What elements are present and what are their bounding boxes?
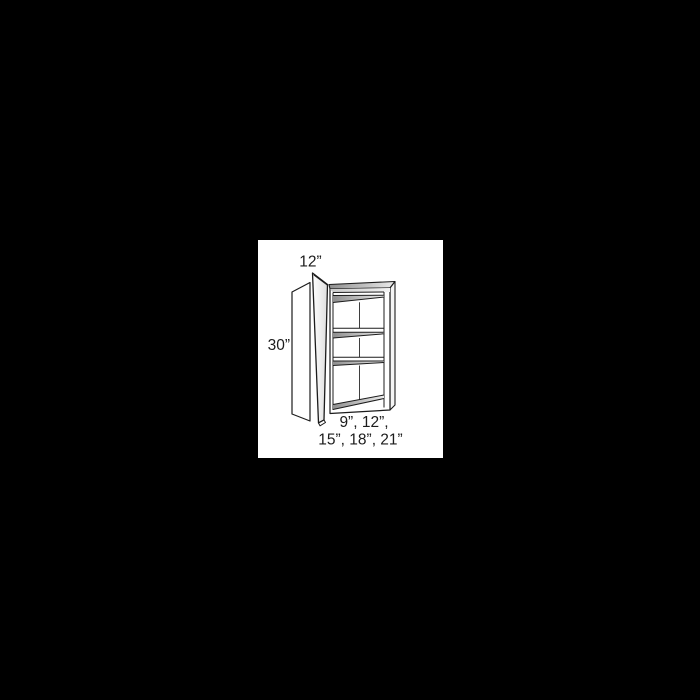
cabinet-left-side-panel-shape [292,283,310,422]
canvas-background: 12” 30” 9”, 12”, 15”, 18”, 21” [0,0,700,700]
cabinet-face-frame-shape [330,288,390,414]
cabinet-diagram-svg: 12” 30” 9”, 12”, 15”, 18”, 21” [258,240,443,458]
label-bottom-widths-line2: 15”, 18”, 21” [318,432,402,449]
label-bottom-widths-line1: 9”, 12”, [339,414,388,431]
cabinet-right-side-shape [390,282,395,411]
label-top-width: 12” [299,254,321,271]
cabinet-door-shape [313,273,328,426]
label-side-height: 30” [268,337,290,354]
diagram-panel: 12” 30” 9”, 12”, 15”, 18”, 21” [258,240,443,458]
